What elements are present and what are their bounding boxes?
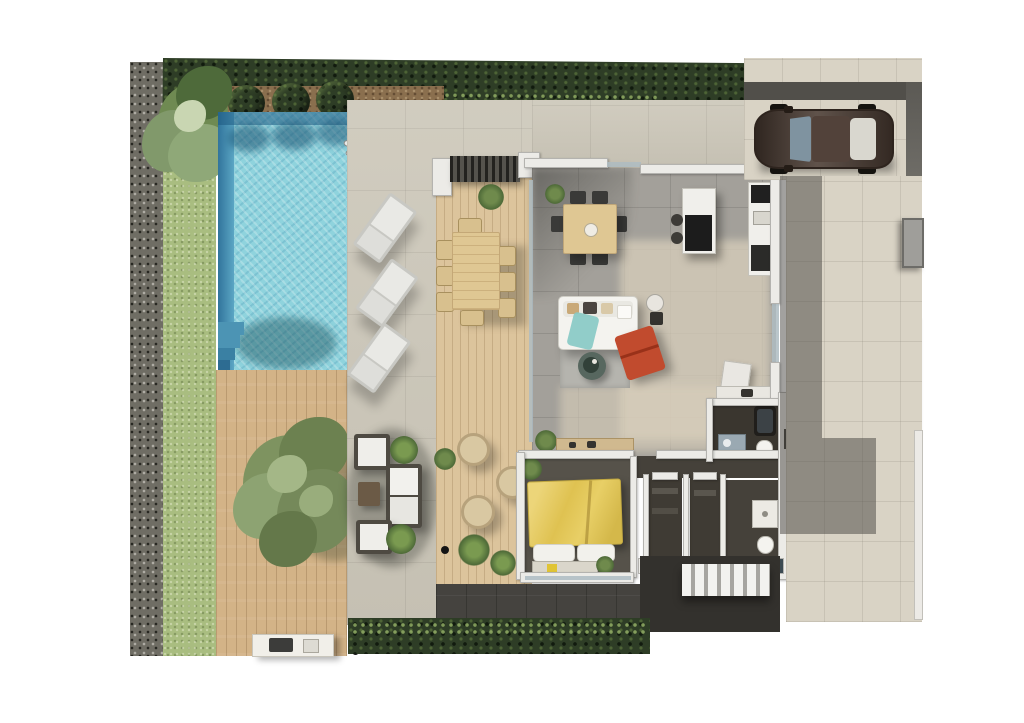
tree-shadow-on-water (236, 317, 336, 369)
terrace-plant (458, 534, 490, 566)
car-roof (812, 116, 850, 162)
wing-wall-top-left (518, 450, 634, 459)
coffee-table (358, 482, 380, 506)
potted-plant (390, 436, 418, 464)
wing-wall-west (516, 452, 525, 580)
bathroom-wall-west (706, 398, 713, 462)
bottom-hedge-light (352, 622, 646, 636)
outdoor-sofa (386, 464, 422, 528)
indoor-dining-chair (570, 191, 586, 204)
house-shadow-southeast (780, 438, 876, 534)
bush-shadow-on-water (228, 124, 270, 152)
terrace-plant (434, 448, 456, 470)
bar-stool (671, 232, 683, 244)
wicker-chair (461, 495, 495, 529)
exterior-stairs (682, 564, 770, 596)
wall-east-upper (770, 172, 780, 304)
cooktop-icon (685, 215, 712, 251)
garden-wall-east (914, 430, 923, 620)
indoor-dining-table (563, 204, 617, 254)
outdoor-dining-chair (498, 246, 516, 266)
deck-spotlight (441, 546, 449, 554)
car-windshield (790, 116, 811, 162)
sofa-pillow (601, 303, 613, 314)
kitchen-island (682, 188, 716, 254)
indoor-dining-chair (592, 191, 608, 204)
pergola-slats (450, 156, 520, 182)
indoor-plant (535, 430, 557, 452)
bathroom-wall-top (706, 398, 782, 406)
car-rear-window (850, 118, 876, 160)
pool (218, 112, 348, 372)
closet-room-a (648, 478, 682, 562)
wall-north-left (524, 158, 608, 168)
sofa-pillow (617, 305, 632, 319)
pergola-cap-left (432, 158, 452, 196)
floor-lamp (646, 294, 664, 312)
shower-tray (752, 500, 778, 528)
bed (527, 478, 623, 547)
car-mirror (784, 165, 793, 172)
terrace-plant (478, 184, 504, 210)
outdoor-dining-table (452, 232, 500, 310)
bedroom-wall-east (630, 456, 637, 578)
bbq-sink-icon (303, 639, 319, 653)
pool-step (218, 348, 235, 360)
outdoor-dining-chair (498, 272, 516, 292)
sliding-glass-west (529, 180, 533, 442)
bbq-counter (252, 634, 334, 657)
wicker-chair (457, 433, 490, 466)
table-centerpiece (584, 223, 598, 237)
closet-door-a (652, 472, 678, 480)
round-coffee-table (578, 352, 606, 380)
terrace-plant (490, 550, 516, 576)
bathtub (754, 406, 776, 436)
oven-icon (751, 185, 771, 203)
outdoor-dining-chair (498, 298, 516, 318)
kitchen-sink-icon (753, 211, 771, 225)
indoor-plant (545, 184, 565, 204)
pool-step (218, 322, 244, 335)
bar-stool (671, 214, 683, 226)
outdoor-dining-chair (460, 310, 484, 326)
toilet (757, 536, 774, 554)
yellow-box (547, 564, 557, 572)
driveway-dark-band (744, 82, 908, 100)
bush-shadow-on-water (272, 122, 316, 150)
wall-north-right (640, 164, 752, 174)
site-plan (0, 0, 1024, 723)
bedroom-south-window (520, 572, 634, 583)
utility-box (902, 218, 924, 268)
bbq-grill-icon (269, 638, 293, 652)
pool-step (218, 335, 240, 348)
fridge-icon (751, 245, 771, 271)
potted-plant (386, 524, 416, 554)
sofa-pillow (583, 302, 597, 314)
closet-door-b (693, 472, 717, 480)
car-mirror (784, 106, 793, 113)
car (754, 104, 896, 174)
window-north (607, 162, 641, 167)
side-table (650, 312, 663, 325)
house-shadow-east (780, 176, 822, 438)
wing-wall-top-right (656, 450, 782, 459)
bed-pillow (533, 544, 575, 562)
window-east (772, 304, 779, 362)
closet-room-b (690, 478, 720, 562)
outdoor-armchair-top (354, 434, 390, 470)
